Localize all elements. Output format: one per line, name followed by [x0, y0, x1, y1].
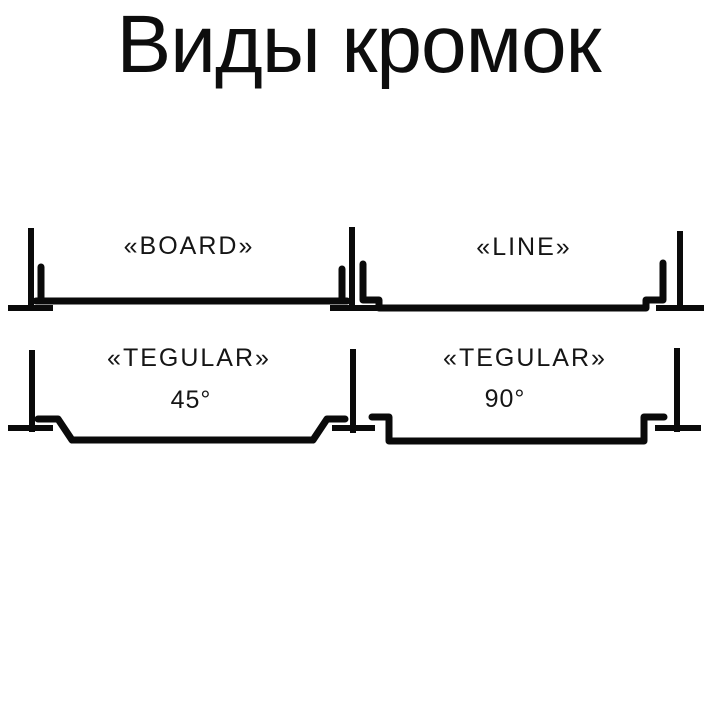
- board-edge-label: «BOARD»: [29, 232, 349, 261]
- tegular-90-edge-label: «TEGULAR»: [365, 344, 685, 373]
- board-panel-profile: [36, 267, 347, 301]
- line-panel-profile: [363, 263, 663, 308]
- line-edge-label: «LINE»: [364, 233, 684, 262]
- edge-types-figure: Виды кромок «BOARD»: [0, 0, 709, 709]
- tegular-45-edge-label: «TEGULAR»: [29, 344, 349, 373]
- board-edge-diagram: [36, 267, 347, 301]
- tegular-45-angle-label: 45°: [31, 386, 351, 415]
- line-edge-diagram: [363, 263, 663, 308]
- tegular-45-edge-diagram: [38, 419, 345, 440]
- tegular-90-edge-diagram: [372, 417, 664, 441]
- tegular-90-panel-profile: [372, 417, 664, 441]
- tegular-45-panel-profile: [38, 419, 345, 440]
- tegular-90-angle-label: 90°: [345, 385, 665, 414]
